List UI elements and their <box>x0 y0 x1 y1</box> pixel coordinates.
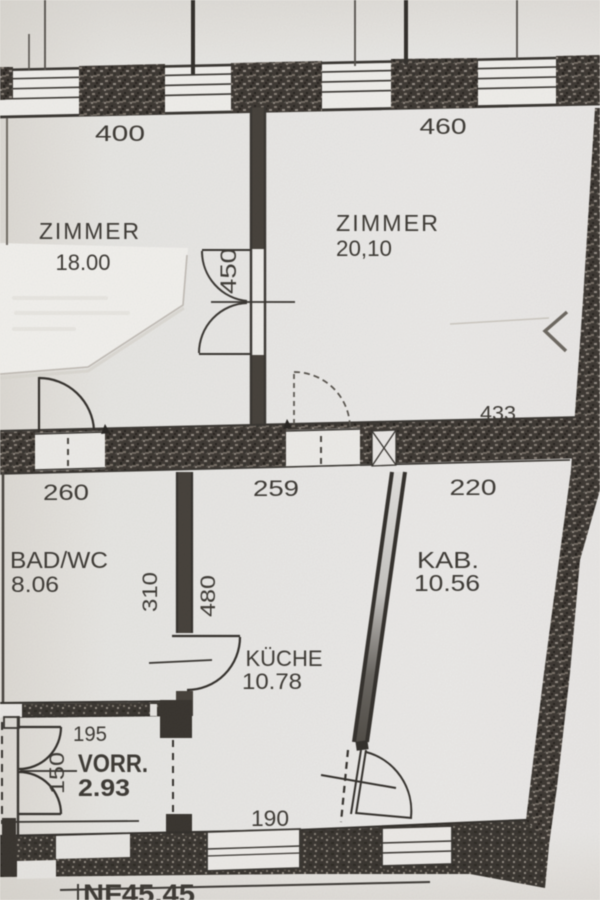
svg-text:20,10: 20,10 <box>336 236 392 261</box>
svg-text:8.06: 8.06 <box>11 572 59 597</box>
svg-text:150: 150 <box>46 752 69 794</box>
svg-text:NF45,45: NF45,45 <box>83 879 195 900</box>
svg-text:433: 433 <box>480 403 516 425</box>
svg-text:ZIMMER: ZIMMER <box>336 210 440 236</box>
svg-text:18.00: 18.00 <box>56 250 111 275</box>
svg-text:480: 480 <box>197 575 220 617</box>
svg-text:450: 450 <box>216 248 241 294</box>
svg-text:ZIMMER: ZIMMER <box>39 218 141 244</box>
svg-text:460: 460 <box>420 114 467 139</box>
svg-text:195: 195 <box>73 723 107 746</box>
svg-text:KÜCHE: KÜCHE <box>246 646 323 671</box>
svg-text:190: 190 <box>251 806 289 831</box>
svg-text:400: 400 <box>95 121 145 146</box>
svg-text:10.56: 10.56 <box>414 570 480 596</box>
svg-text:259: 259 <box>253 476 299 501</box>
svg-text:260: 260 <box>43 480 89 505</box>
svg-text:VORR.: VORR. <box>78 750 148 778</box>
svg-text:10.78: 10.78 <box>242 669 302 694</box>
svg-text:BAD/WC: BAD/WC <box>10 547 108 573</box>
svg-text:2.93: 2.93 <box>78 775 130 802</box>
svg-text:310: 310 <box>139 572 162 612</box>
svg-text:220: 220 <box>450 475 497 500</box>
